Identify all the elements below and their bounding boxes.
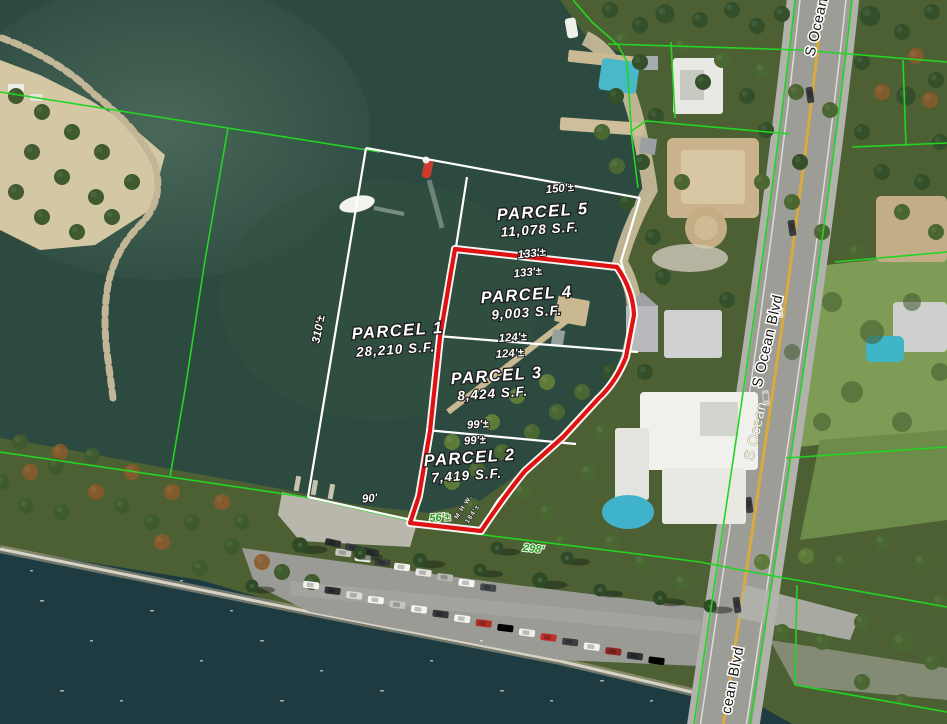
dim-150: 150'±: [545, 182, 575, 196]
dim-99-lower: 99'±: [463, 434, 486, 448]
dim-124-upper: 124'±: [498, 331, 528, 345]
dim-56: 56'±: [429, 511, 451, 524]
dim-99-upper: 99'±: [466, 418, 489, 432]
dim-124-lower: 124'±: [495, 347, 525, 361]
aerial-map-canvas[interactable]: PARCEL 5 11,078 S.F. PARCEL 4 9,003 S.F.…: [0, 0, 947, 724]
dim-90: 90': [361, 492, 379, 505]
